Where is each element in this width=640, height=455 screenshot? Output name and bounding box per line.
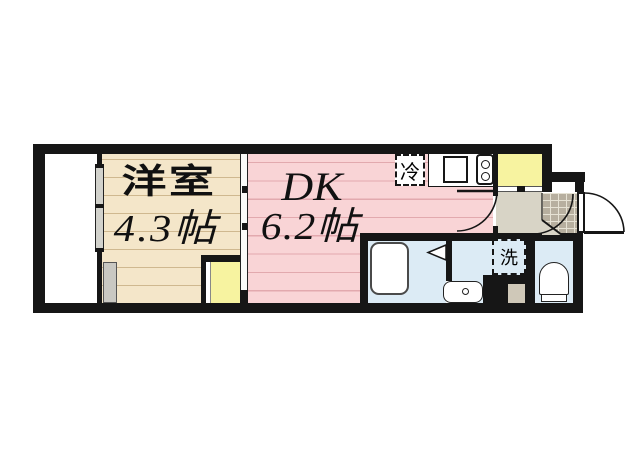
vanity-faucet bbox=[462, 288, 469, 295]
sliding-window bbox=[95, 166, 104, 250]
partition-door-tick bbox=[242, 186, 247, 193]
wall-closet-top bbox=[201, 255, 240, 262]
wall-alcove-right bbox=[575, 182, 584, 192]
toilet-bowl bbox=[539, 262, 569, 295]
hallway-floor bbox=[496, 192, 542, 235]
kitchen-sink bbox=[443, 156, 468, 183]
western-closet bbox=[206, 262, 240, 303]
western-room-name: 洋室 bbox=[121, 166, 216, 200]
genkan-tile-floor bbox=[542, 193, 577, 235]
wall-washroom-toilet bbox=[525, 233, 535, 303]
entrance-step bbox=[508, 284, 525, 303]
wall-right bbox=[573, 233, 583, 313]
refrigerator-space: 冷 bbox=[395, 154, 425, 186]
wall-bottom bbox=[33, 303, 583, 313]
dk-room-name: DK bbox=[281, 167, 342, 207]
pillar bbox=[103, 262, 117, 303]
wall-bath-washroom bbox=[446, 233, 452, 281]
wall-partition-bottom bbox=[240, 290, 248, 303]
wall-left bbox=[33, 144, 45, 313]
wall-alcove-top bbox=[552, 172, 585, 182]
front-door-swing-arc bbox=[585, 193, 624, 232]
wall-hall-left-upper bbox=[493, 152, 498, 196]
toilet-tank bbox=[541, 294, 567, 302]
entry-closet bbox=[498, 154, 542, 186]
dk-room-size: 6.2帖 bbox=[261, 208, 359, 246]
wall-washroom-step-top bbox=[483, 275, 525, 284]
wall-genkan-left bbox=[542, 144, 552, 192]
stove-burner bbox=[481, 160, 490, 169]
wall-bath-left bbox=[360, 241, 368, 303]
partition-sliding-door bbox=[240, 154, 248, 290]
window-tick bbox=[95, 248, 104, 252]
entry-closet-tick bbox=[517, 186, 525, 192]
bathtub bbox=[370, 242, 409, 295]
balcony-area bbox=[45, 154, 97, 303]
floor-plan: 冷 洗 洋室 4.3帖 DK bbox=[0, 0, 640, 455]
wall-top bbox=[33, 144, 552, 154]
window-tick bbox=[95, 204, 104, 208]
front-door-leaf bbox=[577, 192, 585, 233]
washer-space: 洗 bbox=[492, 239, 526, 275]
washer-label: 洗 bbox=[500, 244, 518, 270]
western-room-size: 4.3帖 bbox=[114, 210, 219, 248]
window-tick bbox=[95, 164, 104, 168]
closet-sliding-door bbox=[206, 262, 211, 303]
partition-door-tick bbox=[242, 223, 247, 230]
wall-bath-top bbox=[360, 233, 583, 241]
wall-washroom-step-left bbox=[483, 284, 508, 303]
stove-burner bbox=[481, 172, 490, 181]
refrigerator-label: 冷 bbox=[400, 156, 420, 185]
